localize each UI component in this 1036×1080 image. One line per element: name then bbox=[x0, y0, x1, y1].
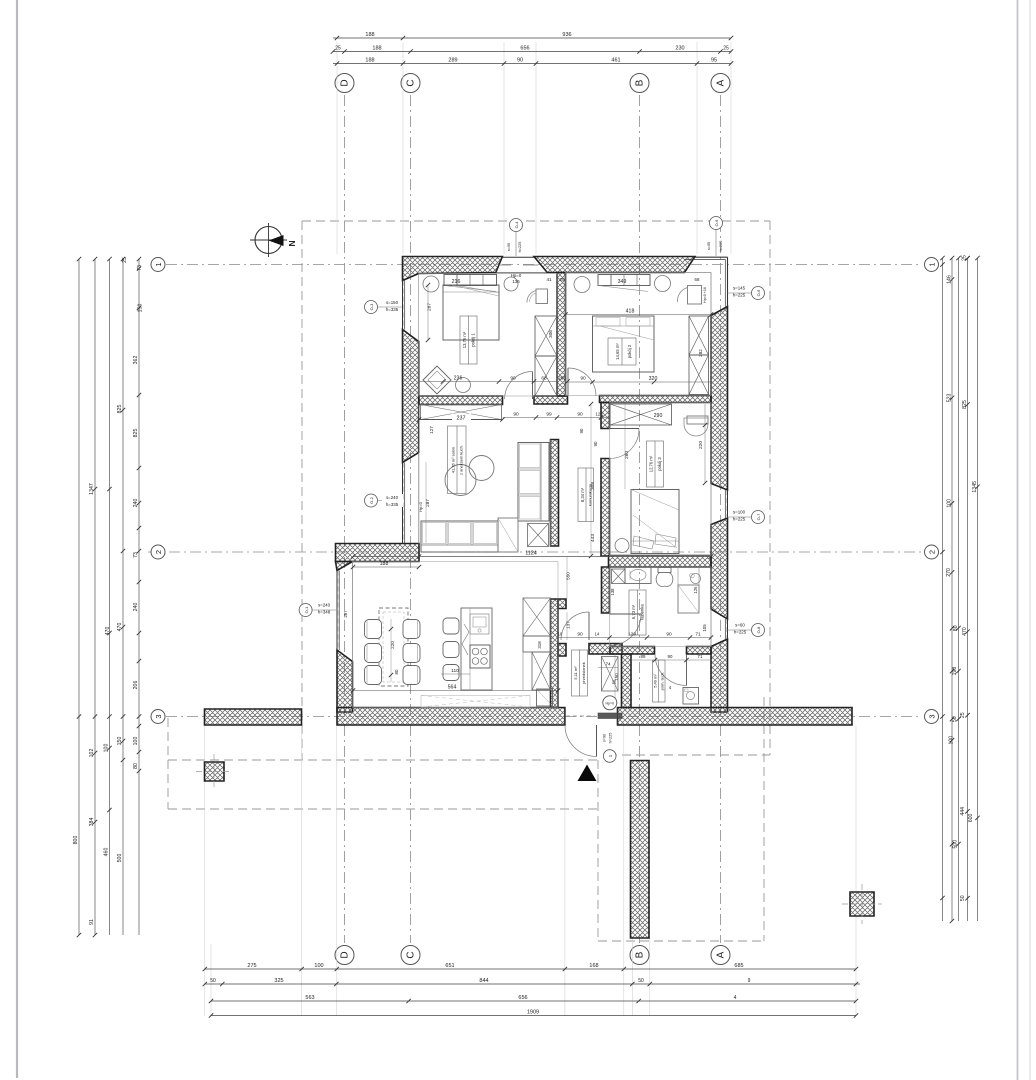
svg-text:50: 50 bbox=[612, 679, 617, 684]
svg-text:651: 651 bbox=[445, 963, 454, 969]
svg-text:325: 325 bbox=[274, 978, 283, 984]
svg-text:270: 270 bbox=[946, 568, 952, 577]
svg-text:470: 470 bbox=[117, 623, 123, 632]
svg-text:230: 230 bbox=[675, 46, 684, 52]
svg-text:220: 220 bbox=[390, 641, 395, 649]
svg-text:O-4: O-4 bbox=[514, 221, 519, 228]
svg-text:s=60: s=60 bbox=[735, 623, 745, 628]
svg-text:800: 800 bbox=[73, 836, 79, 845]
svg-text:O-3: O-3 bbox=[369, 303, 374, 310]
svg-text:90: 90 bbox=[668, 654, 673, 659]
svg-text:289: 289 bbox=[448, 58, 457, 64]
svg-text:71: 71 bbox=[698, 654, 703, 659]
svg-text:68: 68 bbox=[541, 376, 547, 382]
svg-text:563: 563 bbox=[305, 995, 314, 1001]
svg-text:188: 188 bbox=[380, 561, 389, 567]
svg-text:89: 89 bbox=[641, 654, 646, 659]
svg-text:C: C bbox=[406, 951, 417, 958]
svg-text:Hp=0 +16: Hp=0 +16 bbox=[703, 287, 707, 303]
svg-text:287: 287 bbox=[425, 499, 430, 507]
svg-text:656: 656 bbox=[520, 46, 529, 52]
svg-text:99: 99 bbox=[546, 412, 552, 418]
svg-text:80: 80 bbox=[394, 669, 399, 674]
svg-text:25: 25 bbox=[960, 712, 966, 718]
svg-text:N: N bbox=[287, 240, 297, 246]
svg-text:C: C bbox=[406, 79, 417, 86]
svg-text:h=335: h=335 bbox=[386, 502, 399, 507]
svg-text:90: 90 bbox=[510, 376, 516, 382]
svg-text:9: 9 bbox=[748, 978, 751, 984]
svg-text:198: 198 bbox=[952, 667, 958, 676]
svg-text:265: 265 bbox=[558, 376, 566, 382]
svg-text:25: 25 bbox=[122, 257, 128, 263]
svg-text:pokój 2: pokój 2 bbox=[627, 344, 632, 358]
svg-text:O-1: O-1 bbox=[304, 606, 309, 613]
svg-text:s=240: s=240 bbox=[318, 603, 331, 608]
svg-text:3: 3 bbox=[154, 714, 163, 718]
svg-text:125: 125 bbox=[596, 412, 604, 417]
svg-text:D: D bbox=[340, 79, 351, 86]
svg-text:564: 564 bbox=[448, 685, 457, 691]
svg-text:s=90: s=90 bbox=[603, 734, 607, 742]
svg-text:25: 25 bbox=[335, 46, 341, 52]
svg-text:150: 150 bbox=[138, 304, 144, 313]
svg-text:s=145: s=145 bbox=[733, 286, 746, 291]
svg-text:90: 90 bbox=[513, 412, 519, 418]
svg-text:188: 188 bbox=[372, 46, 381, 52]
svg-text:100: 100 bbox=[947, 499, 953, 508]
svg-text:936: 936 bbox=[562, 32, 571, 38]
svg-text:8,34 m²: 8,34 m² bbox=[580, 487, 585, 502]
svg-text:150: 150 bbox=[117, 737, 123, 746]
svg-text:s=240: s=240 bbox=[386, 495, 399, 500]
svg-text:110: 110 bbox=[451, 668, 459, 674]
svg-text:206: 206 bbox=[133, 681, 139, 690]
svg-text:s=150: s=150 bbox=[386, 300, 399, 305]
svg-text:349: 349 bbox=[618, 279, 627, 285]
svg-text:komunikacja: komunikacja bbox=[588, 483, 593, 506]
svg-text:B: B bbox=[635, 79, 646, 86]
svg-text:A: A bbox=[716, 951, 727, 958]
svg-text:68: 68 bbox=[695, 277, 700, 282]
svg-text:287: 287 bbox=[427, 303, 433, 311]
svg-text:s=90: s=90 bbox=[507, 243, 511, 251]
svg-text:80: 80 bbox=[953, 625, 959, 631]
svg-text:384: 384 bbox=[89, 818, 95, 827]
svg-text:90: 90 bbox=[577, 632, 583, 638]
svg-text:825: 825 bbox=[962, 400, 968, 409]
svg-text:80: 80 bbox=[133, 763, 139, 769]
svg-text:461: 461 bbox=[611, 58, 620, 64]
svg-text:287: 287 bbox=[343, 610, 348, 618]
svg-text:O-2: O-2 bbox=[369, 496, 374, 503]
svg-text:h=225: h=225 bbox=[733, 293, 746, 298]
svg-text:25: 25 bbox=[962, 255, 968, 261]
svg-text:362: 362 bbox=[133, 356, 139, 365]
svg-text:90: 90 bbox=[517, 58, 523, 64]
svg-text:168: 168 bbox=[589, 963, 598, 969]
svg-text:6,73 m²: 6,73 m² bbox=[631, 604, 636, 619]
svg-text:216: 216 bbox=[452, 279, 461, 285]
svg-text:237: 237 bbox=[457, 416, 466, 422]
svg-text:685: 685 bbox=[734, 963, 743, 969]
svg-text:25: 25 bbox=[723, 46, 729, 52]
svg-text:290: 290 bbox=[654, 413, 663, 419]
svg-text:O-6: O-6 bbox=[714, 219, 719, 226]
svg-text:523: 523 bbox=[947, 393, 953, 402]
svg-text:105: 105 bbox=[702, 624, 707, 632]
svg-text:100: 100 bbox=[314, 963, 323, 969]
svg-text:91: 91 bbox=[89, 919, 95, 925]
svg-text:50: 50 bbox=[960, 895, 966, 901]
svg-text:Hp=0: Hp=0 bbox=[418, 501, 423, 511]
svg-text:318: 318 bbox=[537, 641, 542, 649]
svg-text:1: 1 bbox=[928, 262, 937, 266]
svg-text:236: 236 bbox=[454, 376, 463, 382]
svg-text:5,11 m²: 5,11 m² bbox=[573, 666, 578, 680]
svg-text:470: 470 bbox=[962, 627, 968, 636]
svg-text:460: 460 bbox=[104, 848, 110, 857]
svg-text:1345: 1345 bbox=[972, 481, 978, 493]
svg-text:146: 146 bbox=[947, 275, 953, 284]
svg-text:13,76 m²: 13,76 m² bbox=[462, 331, 467, 348]
svg-text:90: 90 bbox=[579, 428, 584, 433]
svg-text:500: 500 bbox=[117, 854, 123, 863]
svg-text:282: 282 bbox=[698, 349, 703, 357]
svg-text:275: 275 bbox=[247, 963, 256, 969]
svg-text:h=225: h=225 bbox=[518, 242, 522, 253]
svg-text:443: 443 bbox=[590, 534, 596, 542]
svg-text:136: 136 bbox=[512, 279, 520, 284]
svg-text:3: 3 bbox=[928, 714, 937, 718]
svg-text:14: 14 bbox=[595, 632, 600, 637]
svg-text:Hp=0: Hp=0 bbox=[605, 702, 614, 706]
svg-text:O-6: O-6 bbox=[756, 289, 761, 296]
svg-text:h=335: h=335 bbox=[386, 307, 399, 312]
svg-text:320: 320 bbox=[649, 376, 658, 382]
svg-text:1124: 1124 bbox=[525, 551, 537, 557]
svg-text:1: 1 bbox=[154, 262, 163, 266]
svg-text:100: 100 bbox=[104, 744, 110, 753]
svg-text:h=225: h=225 bbox=[719, 241, 723, 252]
svg-text:600: 600 bbox=[968, 813, 974, 822]
svg-text:h=225: h=225 bbox=[733, 517, 746, 522]
svg-text:A: A bbox=[716, 79, 727, 86]
svg-text:50: 50 bbox=[210, 978, 216, 984]
svg-text:pom. tech.: pom. tech. bbox=[660, 672, 665, 691]
svg-text:74: 74 bbox=[605, 662, 611, 667]
svg-text:90: 90 bbox=[666, 632, 672, 638]
svg-text:10: 10 bbox=[558, 632, 563, 637]
svg-text:50: 50 bbox=[952, 716, 958, 722]
svg-text:pokój 3: pokój 3 bbox=[657, 457, 662, 471]
svg-text:pokój 1: pokój 1 bbox=[471, 333, 476, 347]
svg-text:h=348: h=348 bbox=[318, 610, 331, 615]
svg-text:138: 138 bbox=[610, 588, 615, 596]
svg-text:łazienka: łazienka bbox=[640, 604, 645, 620]
svg-text:825: 825 bbox=[133, 429, 139, 438]
svg-text:470: 470 bbox=[105, 627, 111, 636]
svg-text:95: 95 bbox=[711, 58, 717, 64]
svg-text:2: 2 bbox=[928, 550, 937, 554]
svg-text:s=95: s=95 bbox=[707, 242, 711, 250]
svg-text:90: 90 bbox=[593, 441, 598, 446]
svg-text:25: 25 bbox=[559, 277, 565, 282]
svg-text:h=225: h=225 bbox=[609, 733, 613, 744]
svg-text:188: 188 bbox=[365, 32, 374, 38]
svg-text:137: 137 bbox=[566, 621, 571, 629]
svg-text:2: 2 bbox=[154, 550, 163, 554]
svg-text:5,49 m²: 5,49 m² bbox=[653, 674, 658, 688]
svg-text:50: 50 bbox=[638, 978, 644, 984]
svg-text:500: 500 bbox=[953, 840, 959, 849]
svg-text:100: 100 bbox=[133, 737, 139, 746]
svg-text:1909: 1909 bbox=[527, 1010, 539, 1016]
svg-text:126: 126 bbox=[693, 586, 698, 594]
svg-text:127: 127 bbox=[429, 426, 434, 434]
svg-text:41: 41 bbox=[546, 277, 552, 282]
svg-text:306: 306 bbox=[548, 330, 553, 338]
svg-text:844: 844 bbox=[479, 978, 488, 984]
svg-text:O-8: O-8 bbox=[756, 626, 761, 633]
svg-text:1347: 1347 bbox=[89, 483, 95, 495]
svg-text:90: 90 bbox=[580, 376, 586, 382]
svg-text:418: 418 bbox=[626, 309, 635, 315]
svg-text:240: 240 bbox=[133, 499, 139, 508]
svg-text:41,26 m² salon: 41,26 m² salon bbox=[451, 447, 456, 473]
svg-text:h=225: h=225 bbox=[734, 630, 747, 635]
svg-text:90: 90 bbox=[577, 412, 583, 418]
svg-text:656: 656 bbox=[518, 995, 527, 1001]
svg-text:825: 825 bbox=[117, 405, 123, 414]
svg-text:550: 550 bbox=[566, 572, 571, 580]
svg-text:100: 100 bbox=[949, 736, 955, 745]
svg-text:12,76 m²: 12,76 m² bbox=[649, 455, 654, 472]
svg-text:z aneksem kuch.: z aneksem kuch. bbox=[459, 445, 464, 475]
svg-text:444: 444 bbox=[960, 807, 966, 816]
svg-text:188: 188 bbox=[365, 58, 374, 64]
svg-text:przedsionek: przedsionek bbox=[581, 662, 586, 684]
svg-text:s=100: s=100 bbox=[733, 510, 746, 515]
svg-text:B: B bbox=[635, 951, 646, 958]
svg-text:220: 220 bbox=[698, 441, 704, 449]
svg-text:102: 102 bbox=[89, 749, 95, 758]
svg-text:73: 73 bbox=[133, 552, 139, 558]
svg-text:D: D bbox=[340, 951, 351, 958]
svg-text:Hp=0: Hp=0 bbox=[511, 273, 522, 278]
svg-text:4: 4 bbox=[734, 995, 737, 1001]
svg-text:14,65 m²: 14,65 m² bbox=[615, 343, 620, 360]
svg-text:O-7: O-7 bbox=[756, 513, 761, 520]
svg-text:240: 240 bbox=[133, 603, 139, 612]
svg-text:73: 73 bbox=[137, 265, 143, 271]
svg-text:71: 71 bbox=[695, 632, 701, 638]
